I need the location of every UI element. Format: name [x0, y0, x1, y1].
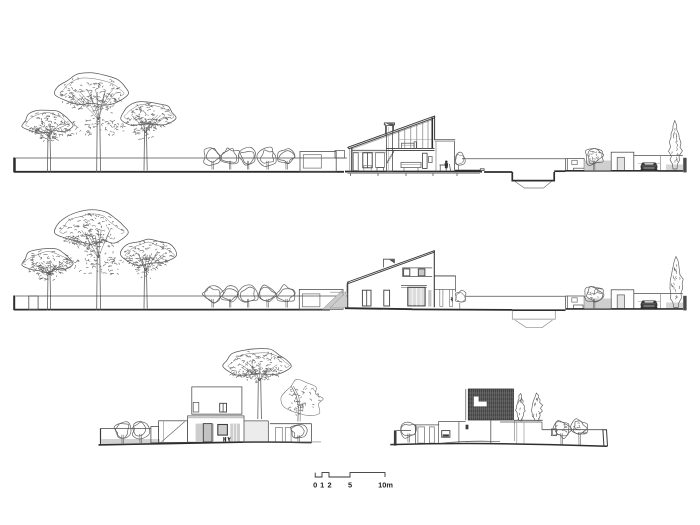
svg-text:5: 5: [348, 481, 352, 490]
svg-text:0: 0: [313, 481, 317, 490]
svg-text:1: 1: [320, 481, 324, 490]
svg-text:10m: 10m: [378, 481, 393, 490]
svg-text:2: 2: [327, 481, 331, 490]
